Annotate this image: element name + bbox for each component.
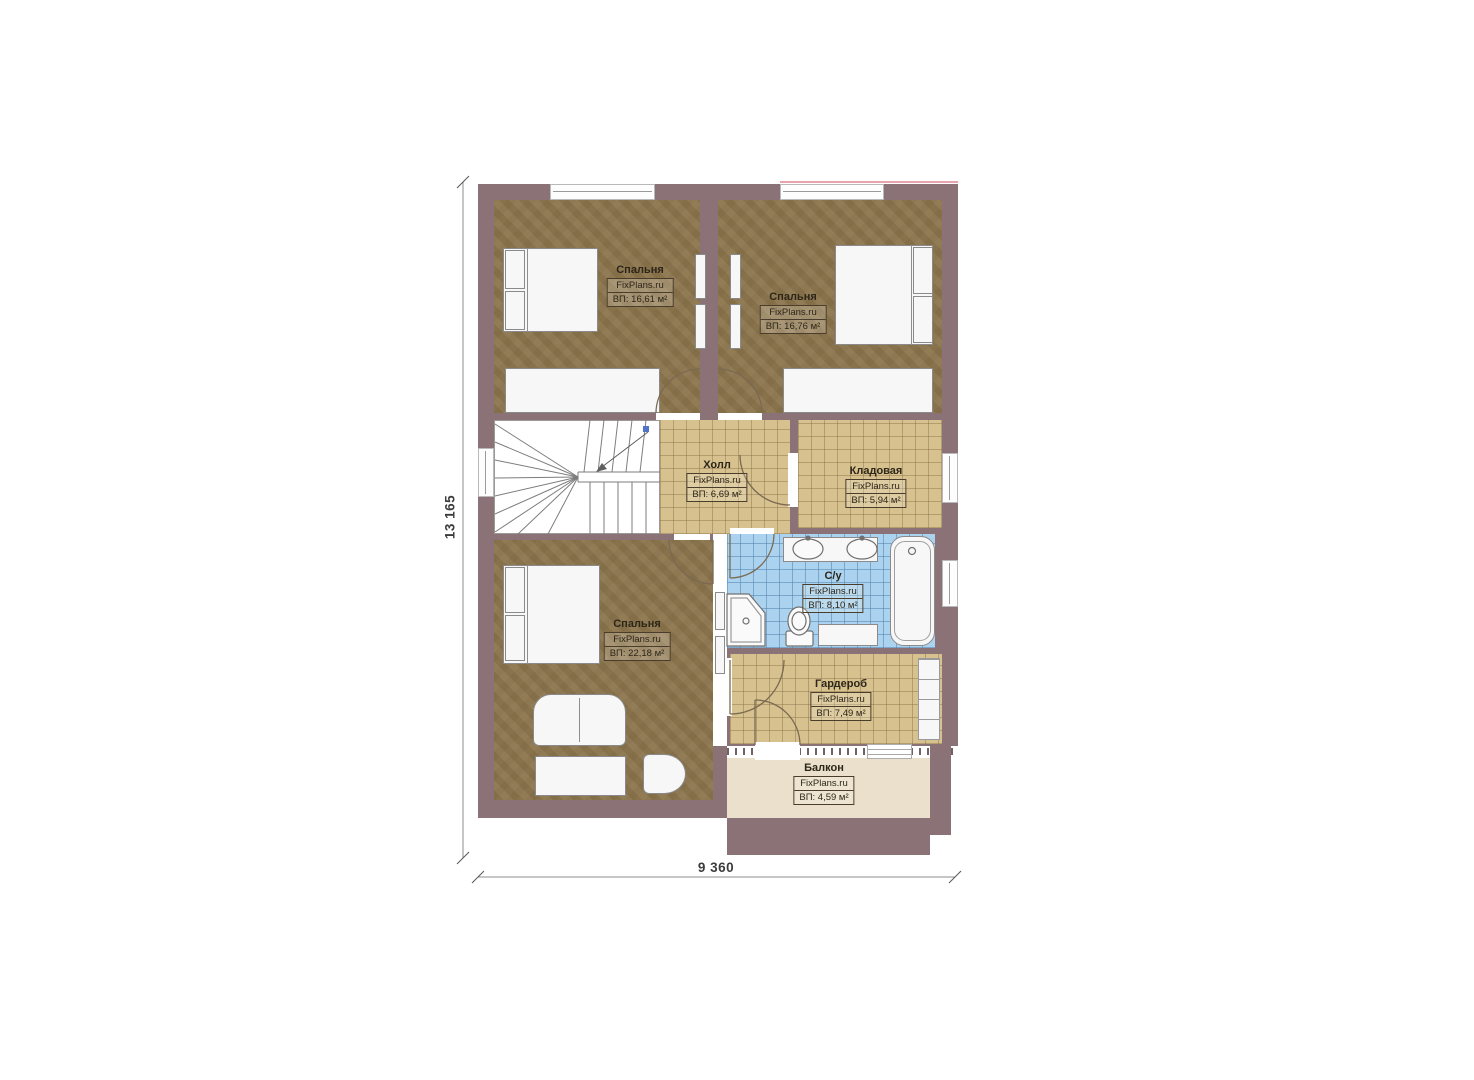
room-brand: FixPlans.ru xyxy=(803,585,862,598)
sofa-seam xyxy=(579,698,580,742)
room-info-box: FixPlans.ru ВП: 16,61 м² xyxy=(607,278,674,307)
floor-plan: Спальня FixPlans.ru ВП: 16,61 м² Спальня… xyxy=(478,184,958,855)
armchair xyxy=(643,754,686,794)
door-opening-bathroom xyxy=(730,528,774,534)
window-frame-line xyxy=(553,191,652,192)
balcony-window xyxy=(867,744,912,759)
room-label-bedroom-top-right: Спальня FixPlans.ru ВП: 16,76 м² xyxy=(760,291,827,334)
dimension-line-vertical xyxy=(457,176,469,864)
room-brand: FixPlans.ru xyxy=(608,279,673,292)
floor-plan-canvas: Спальня FixPlans.ru ВП: 16,61 м² Спальня… xyxy=(0,0,1474,1080)
room-label-storage: Кладовая FixPlans.ru ВП: 5,94 м² xyxy=(845,465,906,508)
wardrobe-cabinet xyxy=(505,368,660,413)
pillow xyxy=(505,615,525,661)
dimension-height-label: 13 165 xyxy=(443,495,458,539)
pillow xyxy=(913,296,933,343)
room-label-bathroom: С/у FixPlans.ru ВП: 8,10 м² xyxy=(802,570,863,613)
door-opening-bedroom-top-right xyxy=(718,413,762,420)
room-label-hall: Холл FixPlans.ru ВП: 6,69 м² xyxy=(686,459,747,502)
room-brand: FixPlans.ru xyxy=(846,480,905,493)
room-name: Кладовая xyxy=(845,465,906,477)
cabinet xyxy=(695,254,706,299)
cabinet xyxy=(695,304,706,349)
pillow xyxy=(505,567,525,613)
bathtub-inner xyxy=(894,541,931,641)
radiator xyxy=(715,592,725,630)
balcony-lower-wall xyxy=(727,818,930,855)
room-area: ВП: 16,61 м² xyxy=(608,292,673,306)
balcony-right-pillar xyxy=(930,746,951,835)
window-frame-line xyxy=(949,563,950,604)
window-dimension-accent xyxy=(780,181,958,183)
room-info-box: FixPlans.ru ВП: 5,94 м² xyxy=(845,479,906,508)
pillow xyxy=(913,247,933,294)
door-opening-wardrobe xyxy=(724,658,732,716)
door-opening-storage xyxy=(788,453,798,507)
bed-fold-line xyxy=(527,248,528,332)
table xyxy=(535,756,626,796)
wall-bathroom-right xyxy=(935,528,942,654)
room-info-box: FixPlans.ru ВП: 22,18 м² xyxy=(604,632,671,661)
room-area: ВП: 5,94 м² xyxy=(846,493,905,507)
sink-counter xyxy=(783,537,878,562)
room-name: Спальня xyxy=(604,618,671,630)
room-area: ВП: 6,69 м² xyxy=(687,487,746,501)
room-info-box: FixPlans.ru ВП: 4,59 м² xyxy=(793,776,854,805)
room-brand: FixPlans.ru xyxy=(811,693,870,706)
room-area: ВП: 7,49 м² xyxy=(811,706,870,720)
window-frame-line xyxy=(783,191,881,192)
room-area: ВП: 8,10 м² xyxy=(803,598,862,612)
window-left xyxy=(478,448,494,497)
balcony-door-opening xyxy=(755,742,800,760)
room-label-wardrobe: Гардероб FixPlans.ru ВП: 7,49 м² xyxy=(810,678,871,721)
room-name: Балкон xyxy=(793,762,854,774)
room-info-box: FixPlans.ru ВП: 16,76 м² xyxy=(760,305,827,334)
room-area: ВП: 4,59 м² xyxy=(794,790,853,804)
room-brand: FixPlans.ru xyxy=(605,633,670,646)
radiator xyxy=(715,636,725,674)
bed-fold-line xyxy=(527,565,528,664)
room-info-box: FixPlans.ru ВП: 8,10 м² xyxy=(802,584,863,613)
door-opening-bedroom-bottom xyxy=(674,534,710,540)
bed-fold-line xyxy=(911,245,912,345)
room-label-balcony: Балкон FixPlans.ru ВП: 4,59 м² xyxy=(793,762,854,805)
room-area: ВП: 16,76 м² xyxy=(761,319,826,333)
room-brand: FixPlans.ru xyxy=(794,777,853,790)
cabinet xyxy=(730,304,741,349)
pillow xyxy=(505,291,525,330)
room-name: Спальня xyxy=(760,291,827,303)
room-label-bedroom-top-left: Спальня FixPlans.ru ВП: 16,61 м² xyxy=(607,264,674,307)
room-info-box: FixPlans.ru ВП: 6,69 м² xyxy=(686,473,747,502)
room-label-bedroom-bottom: Спальня FixPlans.ru ВП: 22,18 м² xyxy=(604,618,671,661)
room-name: Гардероб xyxy=(810,678,871,690)
wardrobe-shelving xyxy=(918,658,940,740)
pillow xyxy=(505,250,525,289)
wardrobe-cabinet xyxy=(783,368,933,413)
window-frame-line xyxy=(485,451,486,494)
room-name: С/у xyxy=(802,570,863,582)
cabinet xyxy=(730,254,741,299)
window-right-bathroom xyxy=(942,560,958,607)
window-top-right xyxy=(780,184,884,200)
window-right-storage xyxy=(942,453,958,503)
staircase-floor xyxy=(494,420,660,534)
door-opening-bedroom-top-left xyxy=(656,413,700,420)
room-area: ВП: 22,18 м² xyxy=(605,646,670,660)
dimension-width-label: 9 360 xyxy=(698,860,734,875)
room-brand: FixPlans.ru xyxy=(761,306,826,319)
room-info-box: FixPlans.ru ВП: 7,49 м² xyxy=(810,692,871,721)
room-name: Холл xyxy=(686,459,747,471)
room-brand: FixPlans.ru xyxy=(687,474,746,487)
window-frame-line xyxy=(949,456,950,500)
bathroom-cabinet xyxy=(818,624,878,646)
room-name: Спальня xyxy=(607,264,674,276)
window-top-left xyxy=(550,184,655,200)
